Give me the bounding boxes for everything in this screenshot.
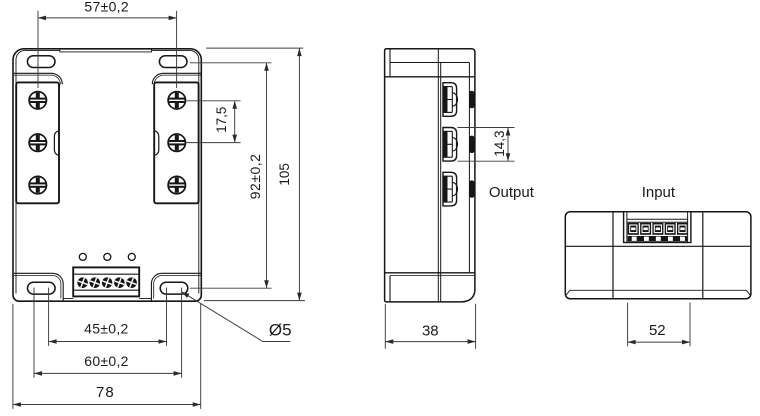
- svg-text:78: 78: [96, 384, 115, 401]
- svg-text:57±0,2: 57±0,2: [84, 0, 129, 14]
- svg-text:105: 105: [277, 163, 292, 186]
- svg-text:60±0,2: 60±0,2: [84, 353, 129, 369]
- svg-text:Ø5: Ø5: [269, 321, 292, 340]
- svg-text:52: 52: [649, 322, 666, 339]
- svg-text:92±0,2: 92±0,2: [247, 154, 263, 200]
- svg-text:17,5: 17,5: [214, 107, 229, 133]
- svg-text:Input: Input: [642, 184, 676, 201]
- svg-text:Output: Output: [489, 184, 535, 201]
- svg-text:45±0,2: 45±0,2: [84, 320, 129, 336]
- svg-text:38: 38: [422, 322, 439, 339]
- svg-text:14,3: 14,3: [492, 130, 507, 156]
